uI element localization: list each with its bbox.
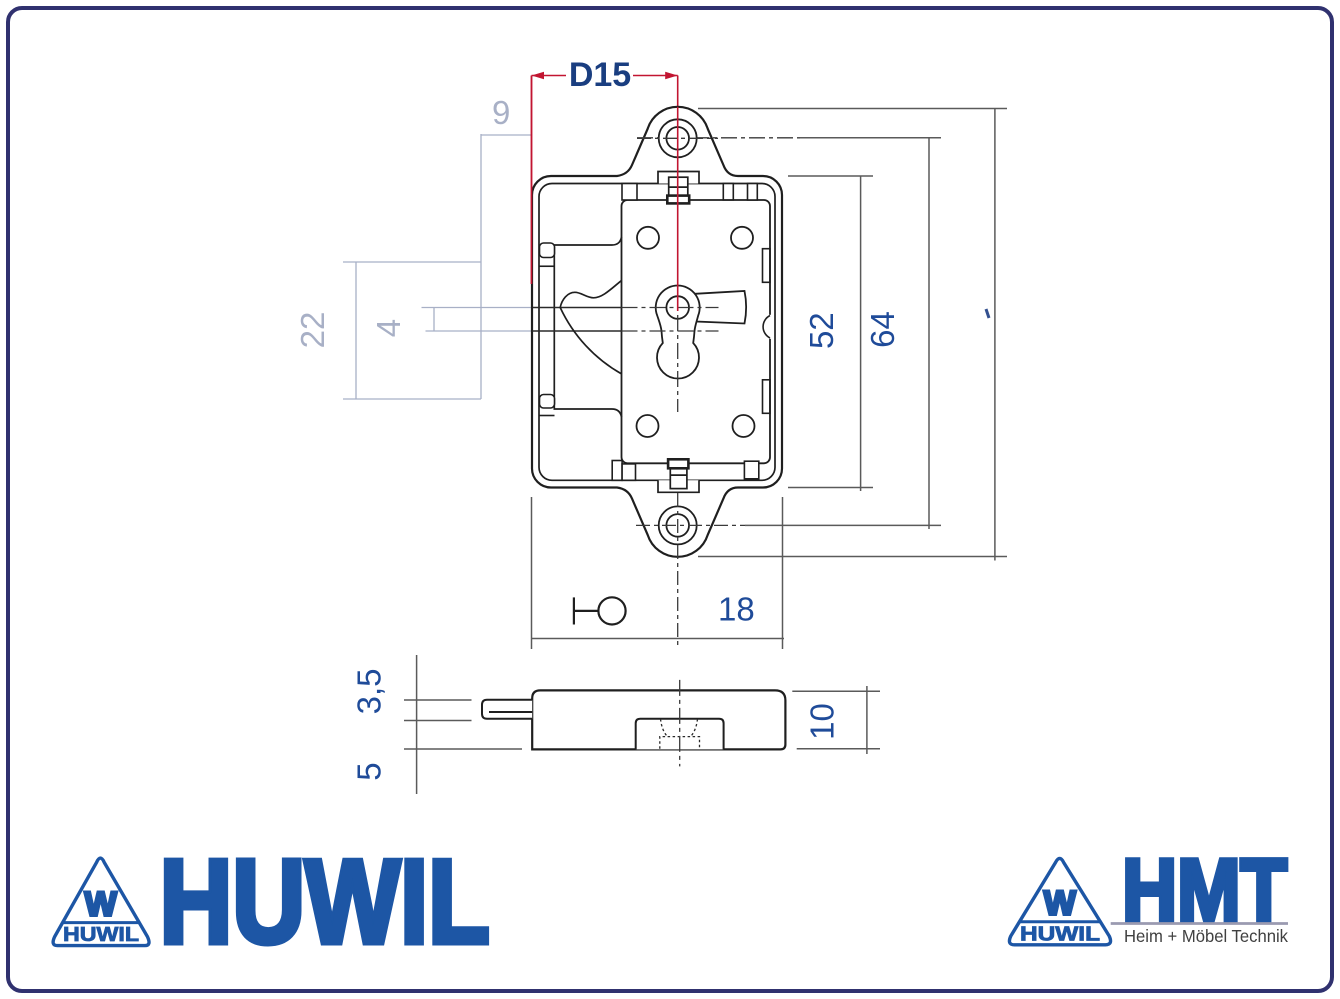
svg-text:52: 52 bbox=[803, 312, 840, 349]
svg-text:10: 10 bbox=[803, 703, 840, 740]
svg-text:HUWIL: HUWIL bbox=[1020, 923, 1100, 945]
svg-text:D15: D15 bbox=[569, 56, 631, 94]
svg-text:W: W bbox=[1044, 885, 1077, 923]
svg-text:Heim + Möbel Technik: Heim + Möbel Technik bbox=[1124, 926, 1288, 946]
svg-text:W: W bbox=[85, 886, 118, 924]
svg-text:HUWIL: HUWIL bbox=[63, 924, 139, 946]
svg-text:3,5: 3,5 bbox=[351, 668, 388, 714]
svg-text:HUWIL: HUWIL bbox=[160, 836, 490, 969]
svg-text:9: 9 bbox=[492, 94, 510, 131]
svg-text:64: 64 bbox=[864, 311, 901, 348]
svg-text:18: 18 bbox=[718, 590, 755, 627]
svg-text:4: 4 bbox=[370, 319, 407, 337]
svg-text:5: 5 bbox=[351, 762, 388, 780]
svg-text:22: 22 bbox=[294, 312, 331, 349]
